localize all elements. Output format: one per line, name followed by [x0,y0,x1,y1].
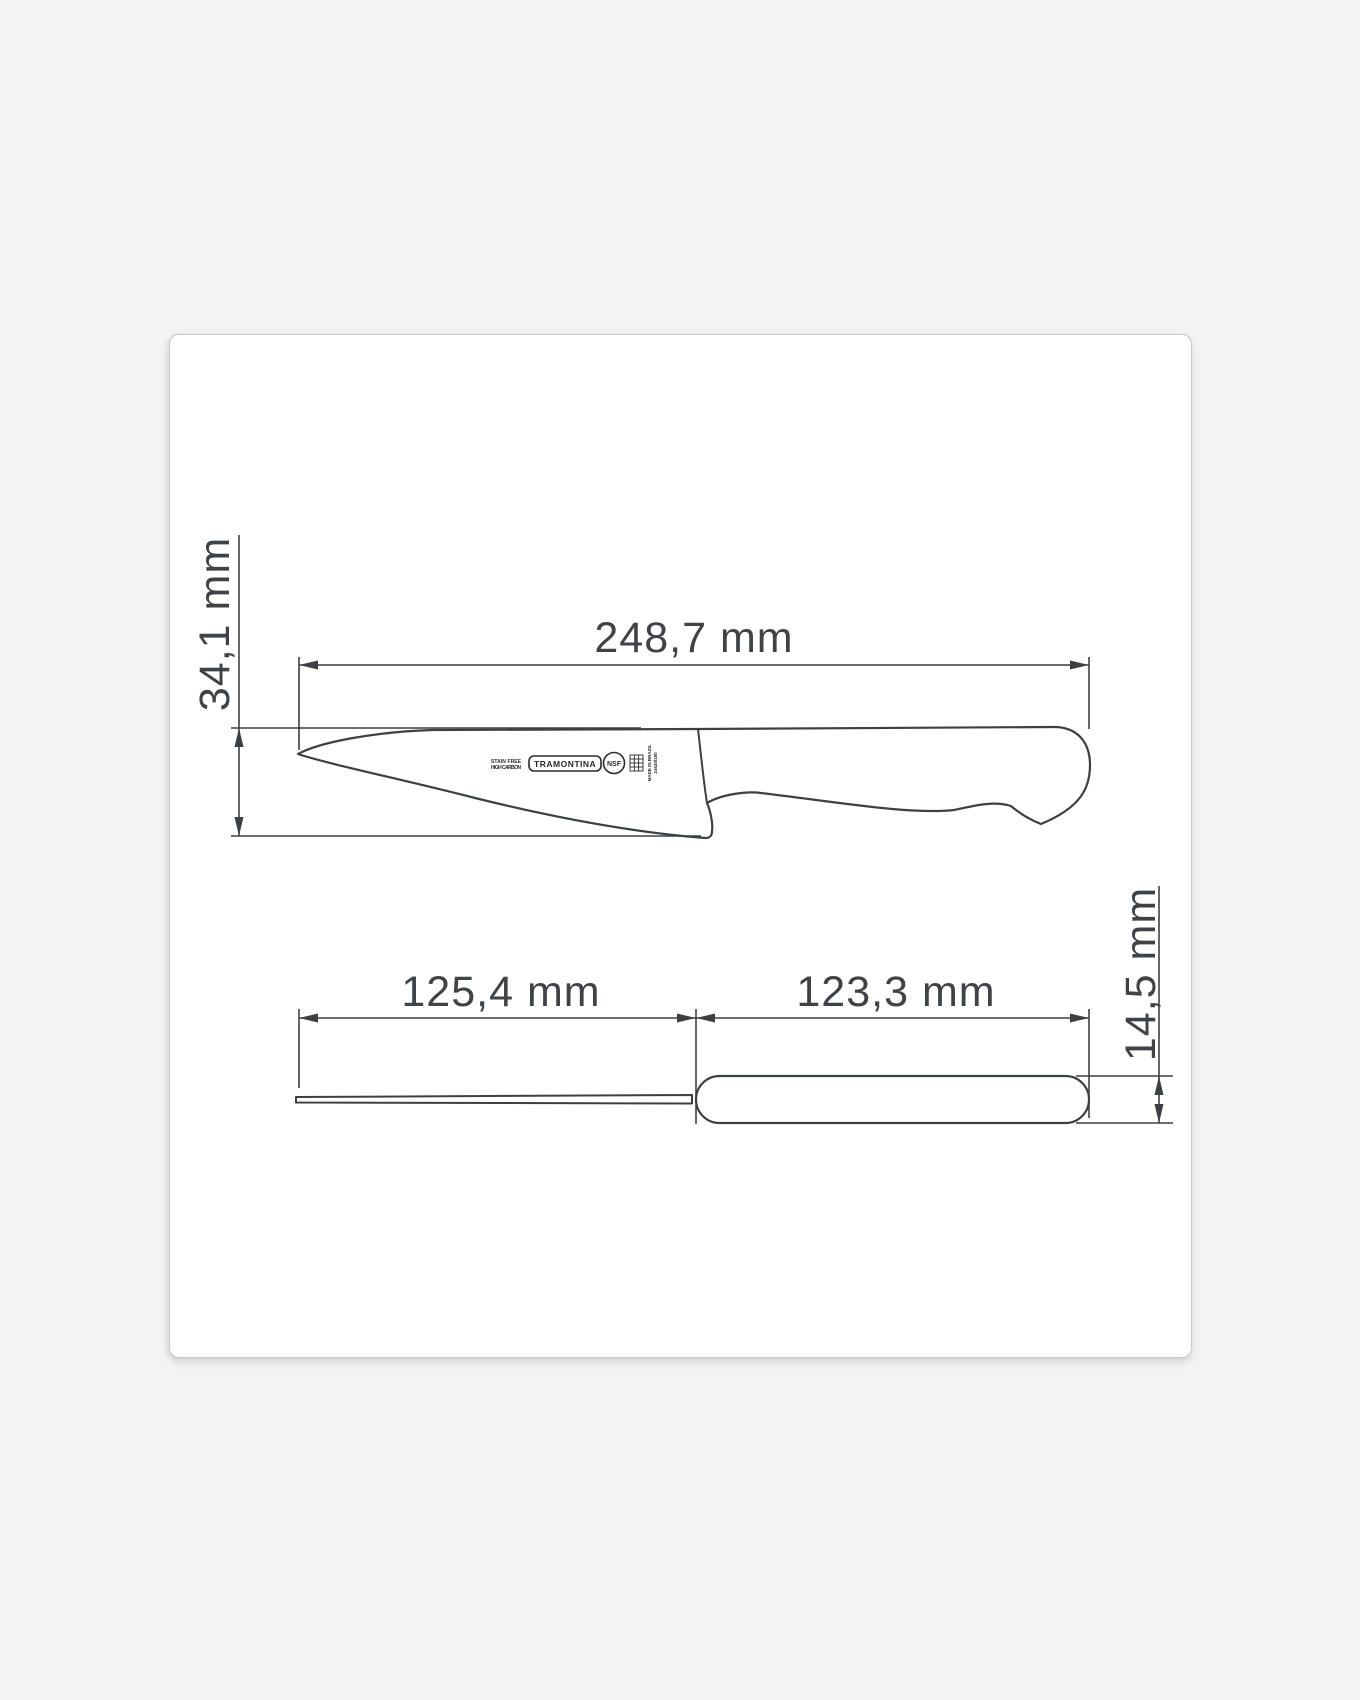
arrowhead-down [1155,1104,1164,1123]
arrowhead-left [299,1014,318,1023]
brand-logo-text: TRAMONTINA [534,759,596,769]
arrowhead-left [696,1014,715,1023]
bolster-line [698,729,707,803]
dimension-blade-height [231,535,701,836]
knife-dimension-drawing: STAIN FREE HIGH CARBON TRAMONTINA NSF MA… [170,335,1193,1359]
knife-side-outline [298,727,1090,838]
arrowhead-right [677,1014,696,1023]
arrowhead-right [1070,1014,1089,1023]
dimension-total-length [299,657,1089,750]
dimension-handle-length [696,1009,1089,1118]
grid-icon [630,755,643,771]
handle-thickness-label: 14,5 mm [1117,887,1165,1061]
arrowhead-down [235,817,244,836]
handle-length-label: 123,3 mm [796,968,995,1016]
blade-markings: STAIN FREE HIGH CARBON TRAMONTINA NSF MA… [491,744,658,781]
side-view-knife [298,727,1090,838]
dimension-blade-length [299,1009,696,1124]
blade-length-label: 125,4 mm [401,968,600,1016]
nsf-certification-text: NSF [607,761,622,768]
knife-top-handle [696,1076,1089,1123]
page-background: { "canvas": { "background": "#f3f3f4", "… [0,0,1360,1700]
blade-height-label: 34,1 mm [191,537,239,711]
origin-text-line2: 24620/180 [653,752,658,774]
knife-top-blade-spine [296,1095,692,1104]
arrowhead-up [1155,1076,1164,1095]
top-view-knife [296,1076,1089,1123]
product-dimensions-card: STAIN FREE HIGH CARBON TRAMONTINA NSF MA… [169,334,1192,1358]
arrowhead-left [299,661,318,670]
total-length-label: 248,7 mm [594,614,793,662]
material-text-line2: HIGH CARBON [491,765,521,771]
arrowhead-right [1070,661,1089,670]
arrowhead-up [235,728,244,747]
origin-text-line1: MADE IN BRAZIL [647,744,652,781]
